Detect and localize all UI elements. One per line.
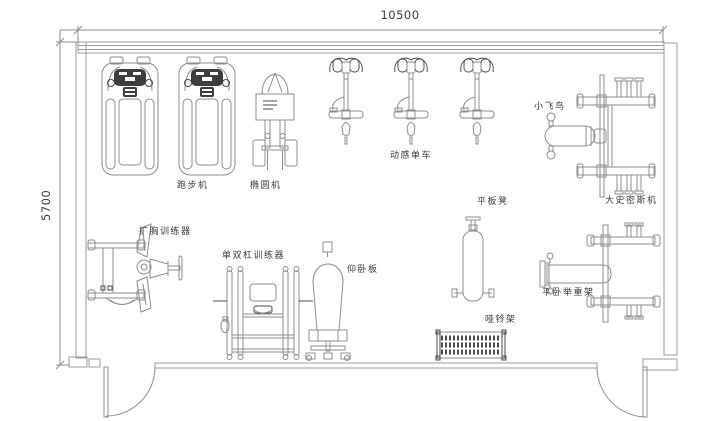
door-left: [104, 367, 155, 417]
label-treadmill: 跑步机: [177, 182, 209, 191]
label-elliptical: 椭圆机: [250, 182, 282, 191]
fly-bird-drawing: [545, 113, 606, 159]
floor-plan-drawing: [0, 0, 726, 421]
label-flat-bench: 平板凳: [477, 198, 509, 207]
pec-deck-drawing: [88, 224, 182, 312]
dip-station-drawing: [213, 267, 313, 360]
treadmill-2-drawing: [179, 57, 235, 175]
dimension-height-label: 5700: [41, 190, 53, 221]
spin-bike-2-drawing: [394, 58, 428, 144]
spin-bike-1-drawing: [329, 58, 363, 144]
smith-machine-drawing: [577, 75, 655, 197]
label-spin-bike: 动感单车: [390, 152, 432, 161]
door-right: [597, 367, 647, 417]
dimension-width-label: 10500: [372, 10, 428, 22]
label-pec-deck: 扩胸训练器: [139, 228, 192, 237]
elliptical-drawing: [253, 73, 297, 170]
dumbbell-rack-drawing: [436, 330, 506, 360]
label-dip-station: 单双杠训练器: [222, 252, 285, 261]
bench-press-drawing: [540, 223, 660, 322]
flat-bench-drawing: [452, 217, 494, 301]
floor-plan: 10500 5700 跑步机 椭圆机 动感单车 小飞鸟 大史密斯机 扩胸训练器 …: [0, 0, 726, 421]
label-situp-board: 仰卧板: [347, 266, 379, 275]
label-fly-bird: 小飞鸟: [534, 103, 566, 112]
label-bench-press: 平卧举重架: [542, 289, 595, 298]
spin-bike-3-drawing: [460, 58, 494, 144]
label-smith-machine: 大史密斯机: [605, 197, 658, 206]
treadmill-1-drawing: [102, 57, 158, 175]
label-dumbbell-rack: 哑铃架: [485, 316, 517, 325]
dimension-lines: [56, 26, 667, 369]
room-walls: [69, 42, 677, 370]
